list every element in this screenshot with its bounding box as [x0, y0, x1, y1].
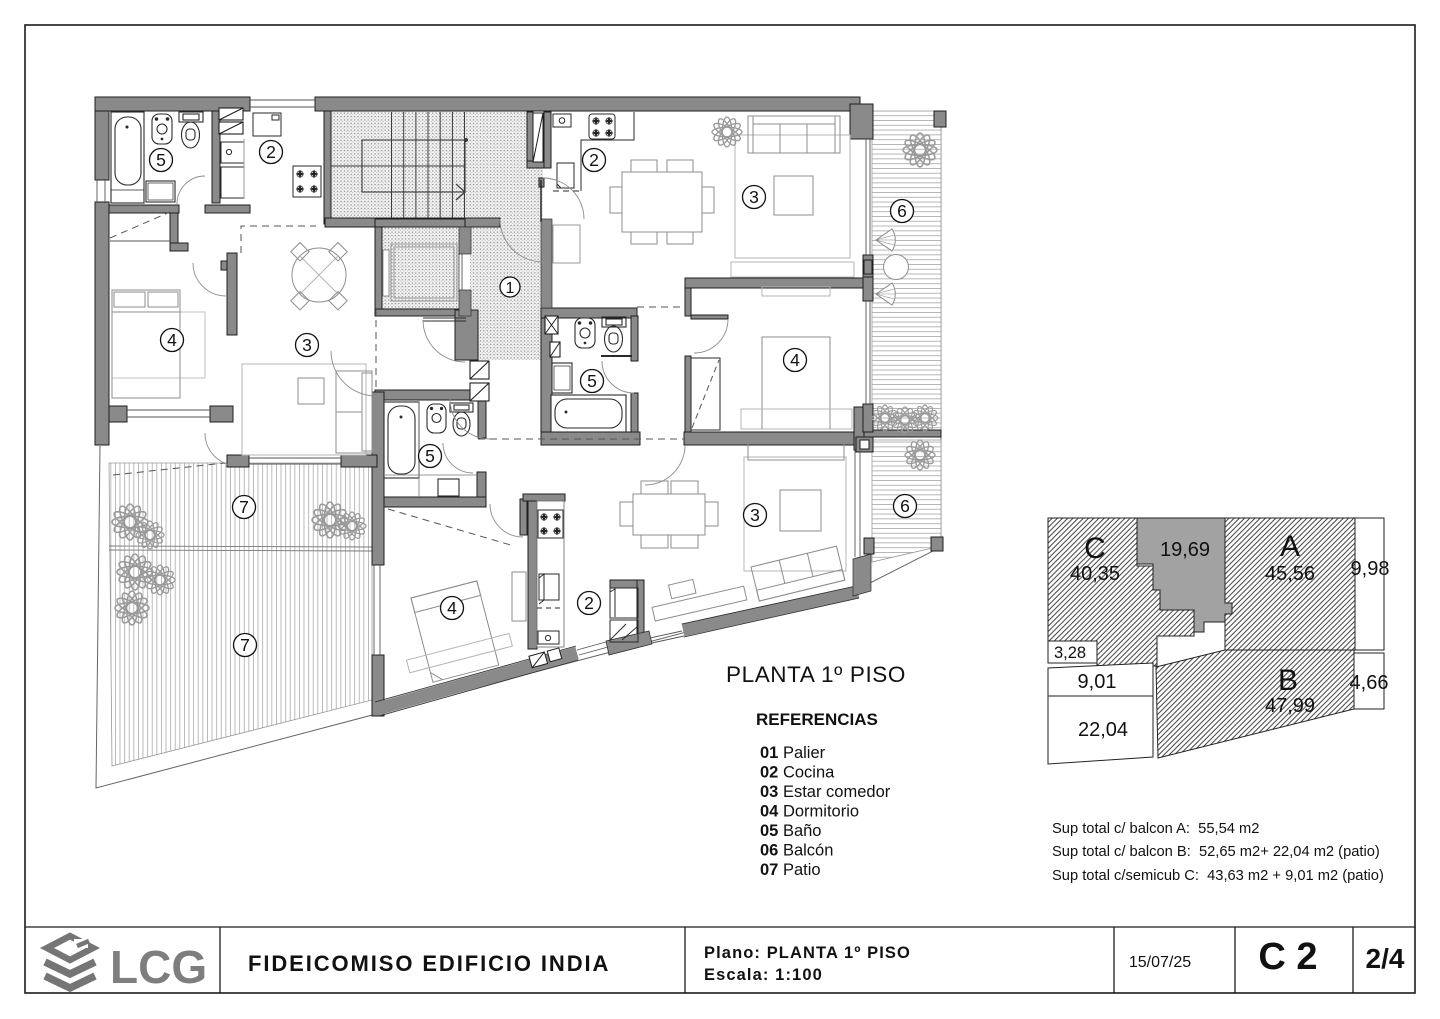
svg-text:3: 3: [750, 505, 760, 525]
svg-text:FIDEICOMISO EDIFICIO INDIA: FIDEICOMISO EDIFICIO INDIA: [248, 951, 610, 976]
svg-text:5: 5: [587, 371, 597, 391]
svg-text:3,28: 3,28: [1054, 644, 1086, 662]
svg-text:Escala: 1:100: Escala: 1:100: [704, 966, 823, 984]
svg-text:22,04: 22,04: [1078, 719, 1128, 741]
svg-text:05 Baño: 05 Baño: [760, 822, 821, 840]
svg-text:A: A: [1280, 530, 1300, 563]
svg-text:3: 3: [749, 187, 759, 207]
svg-text:B: B: [1278, 664, 1298, 697]
svg-text:Sup total c/ balcon A: 55,54: Sup total c/ balcon A: 55,54 m2: [1052, 821, 1259, 837]
svg-text:Sup total c/ balcon B: 52,65: Sup total c/ balcon B: 52,65 m2+ 22,04 m…: [1052, 844, 1380, 860]
svg-text:C: C: [1084, 532, 1106, 565]
svg-text:REFERENCIAS: REFERENCIAS: [756, 710, 878, 729]
svg-text:4: 4: [447, 598, 457, 618]
svg-text:5: 5: [156, 150, 166, 170]
svg-text:7: 7: [239, 497, 249, 517]
svg-text:3: 3: [302, 335, 312, 355]
svg-text:Sup total c/semicub C: 43,63: Sup total c/semicub C: 43,63 m2 + 9,01 m…: [1052, 868, 1384, 884]
svg-text:40,35: 40,35: [1070, 563, 1120, 585]
svg-text:2: 2: [589, 150, 599, 170]
svg-text:7: 7: [240, 635, 250, 655]
svg-text:C 2: C 2: [1258, 936, 1317, 978]
svg-text:9,01: 9,01: [1078, 671, 1117, 693]
svg-text:4,66: 4,66: [1350, 672, 1389, 694]
svg-text:2/4: 2/4: [1366, 943, 1405, 974]
svg-text:04 Dormitorio: 04 Dormitorio: [760, 803, 859, 821]
svg-text:45,56: 45,56: [1265, 563, 1315, 585]
svg-text:19,69: 19,69: [1160, 539, 1210, 561]
svg-text:9,98: 9,98: [1351, 558, 1390, 580]
svg-text:Plano: PLANTA 1º PISO: Plano: PLANTA 1º PISO: [704, 944, 911, 962]
svg-text:5: 5: [425, 446, 435, 466]
svg-text:47,99: 47,99: [1265, 695, 1315, 717]
svg-text:2: 2: [266, 142, 276, 162]
svg-text:6: 6: [900, 496, 910, 516]
svg-text:02 Cocina: 02 Cocina: [760, 764, 835, 782]
svg-text:15/07/25: 15/07/25: [1129, 954, 1191, 971]
svg-text:07 Patio: 07 Patio: [760, 861, 821, 879]
svg-text:PLANTA 1º PISO: PLANTA 1º PISO: [726, 662, 906, 687]
svg-text:03 Estar comedor: 03 Estar comedor: [760, 783, 891, 801]
svg-text:01 Palier: 01 Palier: [760, 744, 826, 762]
svg-text:4: 4: [167, 330, 177, 350]
svg-text:06 Balcón: 06 Balcón: [760, 842, 833, 860]
svg-text:6: 6: [897, 201, 907, 221]
svg-text:1: 1: [506, 280, 515, 297]
svg-text:2: 2: [584, 593, 594, 613]
svg-text:4: 4: [790, 350, 800, 370]
svg-text:LCG: LCG: [110, 941, 207, 993]
